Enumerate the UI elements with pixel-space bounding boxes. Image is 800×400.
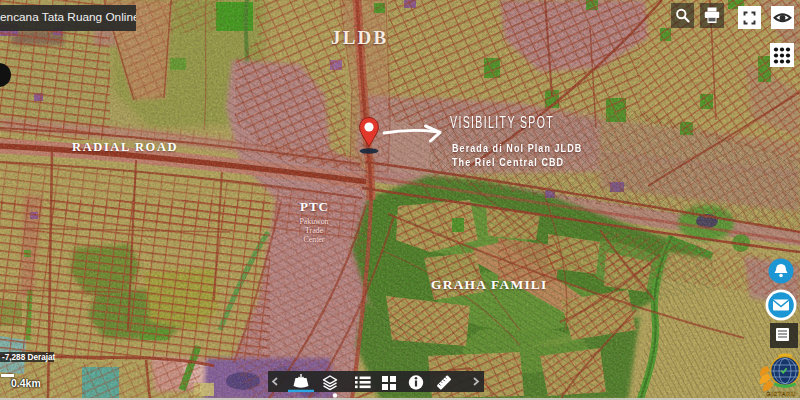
svg-text:GISTARU: GISTARU [766, 391, 796, 397]
